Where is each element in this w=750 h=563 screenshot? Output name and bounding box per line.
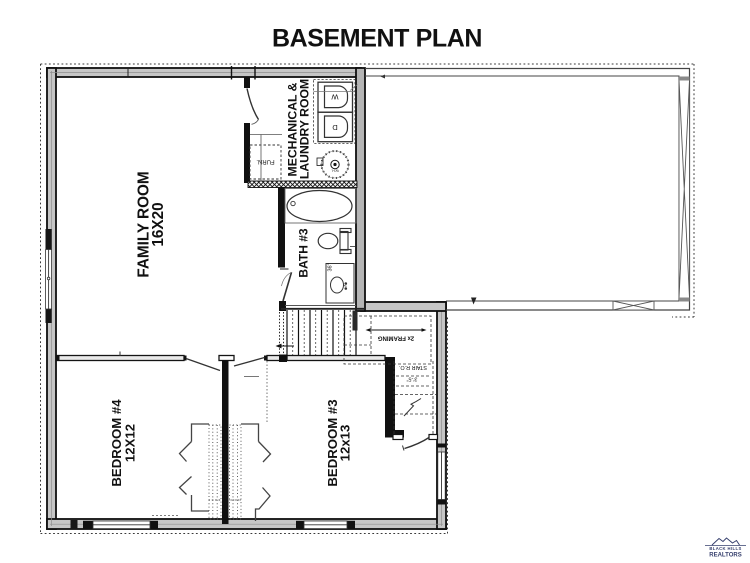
svg-text:12X12: 12X12 <box>123 424 138 462</box>
svg-text:REALTORS: REALTORS <box>709 553 741 559</box>
svg-text:W: W <box>331 93 339 102</box>
svg-text:12x13: 12x13 <box>338 425 353 462</box>
svg-text:2x FRAMING: 2x FRAMING <box>378 335 415 341</box>
svg-text:FURN.: FURN. <box>256 158 275 164</box>
svg-text:STAIR R.O.: STAIR R.O. <box>399 364 427 370</box>
svg-text:LAUNDRY ROOM: LAUNDRY ROOM <box>298 79 312 179</box>
svg-text:BATH #3: BATH #3 <box>297 228 311 277</box>
svg-text:BLACK HILLS: BLACK HILLS <box>709 546 741 551</box>
svg-text:BASEMENT PLAN: BASEMENT PLAN <box>272 25 482 53</box>
svg-text:W.H.: W.H. <box>331 169 338 173</box>
svg-text:36": 36" <box>328 263 334 271</box>
svg-text:16X20: 16X20 <box>150 202 167 246</box>
svg-text:3'-5": 3'-5" <box>407 376 418 382</box>
svg-text:D: D <box>332 123 338 132</box>
